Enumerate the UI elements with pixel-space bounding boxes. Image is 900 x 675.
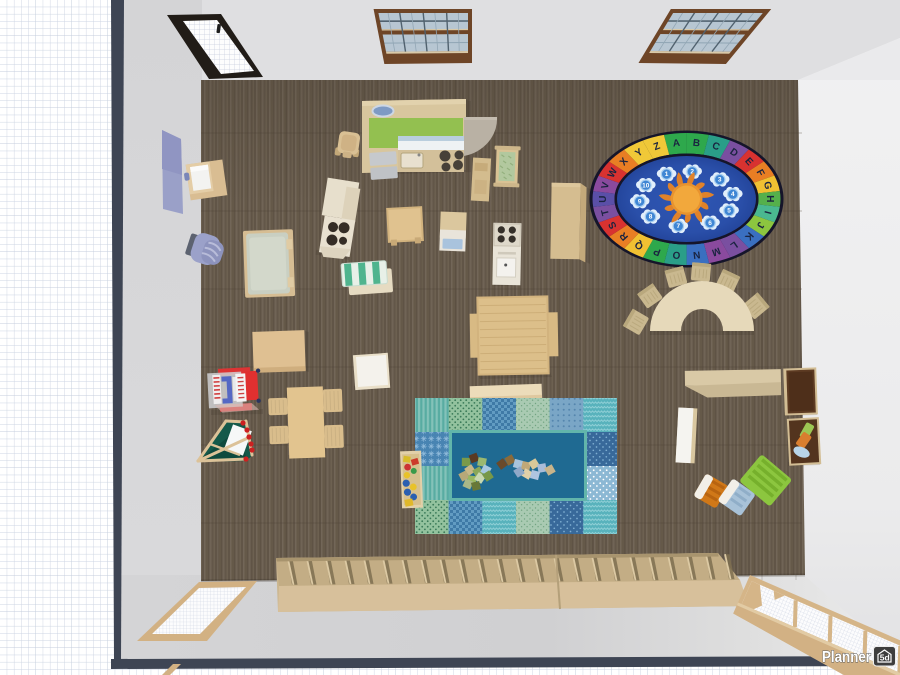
svg-text:7: 7 (676, 223, 680, 230)
svg-text:10: 10 (642, 182, 650, 189)
svg-text:U: U (598, 195, 609, 202)
svg-text:9: 9 (638, 198, 642, 205)
svg-text:O: O (672, 248, 681, 260)
svg-text:8: 8 (649, 214, 653, 221)
svg-text:H: H (764, 195, 775, 202)
svg-text:3: 3 (718, 177, 722, 184)
svg-text:5d: 5d (880, 653, 890, 663)
svg-text:N: N (692, 248, 701, 260)
svg-text:A: A (672, 138, 681, 150)
svg-text:4: 4 (731, 191, 735, 198)
svg-text:B: B (692, 138, 701, 150)
svg-text:6: 6 (708, 220, 712, 227)
svg-text:1: 1 (665, 171, 669, 178)
svg-text:Planner: Planner (822, 649, 871, 666)
svg-text:5: 5 (727, 208, 731, 215)
